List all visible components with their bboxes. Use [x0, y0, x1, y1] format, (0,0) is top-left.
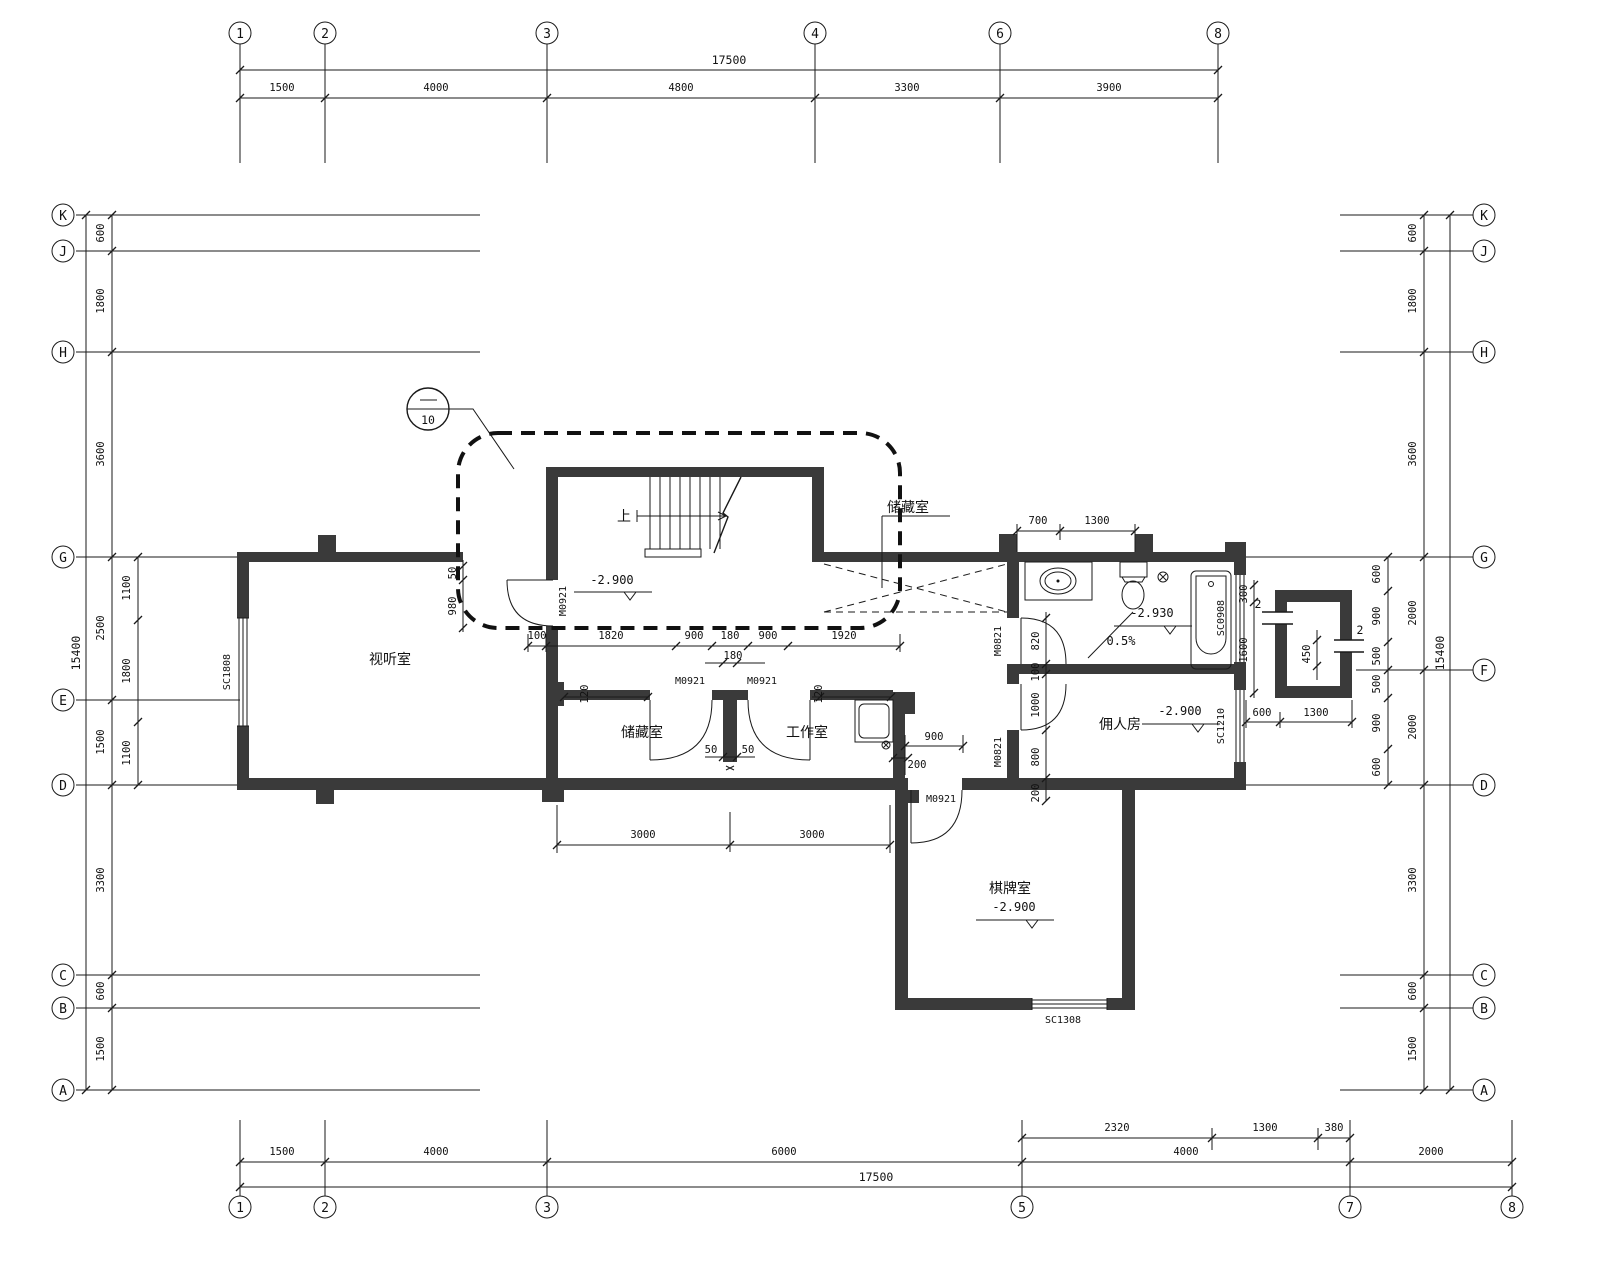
room-label-servant: 佣人房: [1099, 716, 1141, 732]
walls: [237, 467, 1246, 1010]
section-mark: 2: [1357, 623, 1364, 637]
door-code-chess: M0921: [926, 794, 956, 805]
dim: 500: [1371, 675, 1383, 694]
toilet-tank-icon: [1120, 562, 1147, 577]
dim: 50: [447, 567, 459, 580]
dim: 1500: [95, 729, 107, 754]
dim: 900: [925, 731, 944, 743]
dim: 820: [1030, 632, 1042, 651]
detail-dashed-boundary: [458, 433, 900, 628]
dim: 200: [1030, 784, 1042, 803]
window-code-bath: SC0908: [1216, 600, 1227, 636]
dim: 120: [579, 685, 591, 704]
shower-stall-icon: [855, 700, 893, 742]
level-chess: -2.900: [992, 900, 1035, 914]
dim: 300: [1238, 585, 1250, 604]
dim: 900: [759, 630, 778, 642]
dim: 3600: [95, 441, 107, 466]
room-label-storage-under-stair: 储藏室: [887, 499, 929, 515]
window-code-servant: SC1210: [1216, 708, 1227, 744]
windows: [237, 575, 1244, 1010]
level-servant: -2.900: [1158, 704, 1201, 718]
shaft-dim-lines: [1246, 580, 1352, 728]
shaft: 2 2 300 1600 450 600 1300: [1238, 580, 1364, 728]
grid-bubble: D: [59, 779, 67, 794]
detail-region: 10 储藏室: [407, 388, 1007, 628]
stair-up-label: 上: [617, 508, 631, 524]
dim: 180: [721, 630, 740, 642]
stair: 上: [617, 477, 741, 557]
stair-risers: [650, 477, 720, 549]
floor-plan-canvas: 1 2 3 4 6 8 17500 1500 4000 4800 3300 39…: [0, 0, 1600, 1280]
dim: 2000: [1407, 600, 1419, 625]
dim: 50: [705, 744, 718, 756]
grid-bubble: 7: [1346, 1201, 1354, 1216]
dim: 1100: [121, 740, 133, 765]
level-bath-symbol: [1114, 626, 1192, 634]
grid-bubble: 3: [543, 27, 551, 42]
toilet-bowl-icon: [1122, 581, 1144, 609]
stair-landing-edge: [645, 549, 701, 557]
level-servant-symbol: [1142, 724, 1220, 732]
grid-bubble: H: [59, 346, 67, 361]
dim: 100: [1030, 663, 1042, 682]
dim: 2000: [1418, 1146, 1443, 1158]
window-code-media: SC1808: [222, 654, 233, 690]
dim: 600: [1253, 707, 1272, 719]
dim: 3000: [799, 829, 824, 841]
grid-bubble: H: [1480, 346, 1488, 361]
dim: 1100: [121, 575, 133, 600]
dim: 1500: [1407, 1036, 1419, 1061]
room-label-storage: 储藏室: [621, 724, 663, 740]
dim: 600: [1371, 758, 1383, 777]
understair-storage-outline: [824, 564, 1007, 612]
bottom-grid: 1 2 3 5 7 8 2320 1300 380 1500 4000 6000…: [229, 1120, 1523, 1218]
dim: 50: [742, 744, 755, 756]
level-chess-symbol: [976, 920, 1054, 928]
grid-bubble: 2: [321, 27, 329, 42]
doors: [507, 580, 1066, 843]
left-dim-lines: [86, 215, 138, 1090]
grid-bubble: F: [1480, 664, 1488, 679]
dim: 1300: [1303, 707, 1328, 719]
grid-bubble: 3: [543, 1201, 551, 1216]
dim: 3300: [95, 867, 107, 892]
grid-bubble: J: [59, 245, 67, 260]
level-hall-symbol: [574, 592, 652, 600]
room-label-work: 工作室: [786, 724, 828, 740]
door-stair-swing: [507, 580, 553, 626]
room-label-chess: 棋牌室: [989, 880, 1031, 896]
grid-bubble: 4: [811, 27, 819, 42]
grid-bubble: B: [1480, 1002, 1488, 1017]
floor-plan-page: 1 2 3 4 6 8 17500 1500 4000 4800 3300 39…: [0, 0, 1600, 1280]
dim: 3900: [1096, 82, 1121, 94]
grid-bubble: C: [1480, 969, 1488, 984]
section-mark: 2: [1255, 597, 1262, 611]
dim: 600: [95, 224, 107, 243]
window-chess-sc1308: [1032, 998, 1107, 1010]
dim: 100: [528, 630, 547, 642]
dim: 200: [908, 759, 927, 771]
grid-bubble: 5: [1018, 1201, 1026, 1216]
window-media-sc1808: [237, 618, 249, 726]
top-dim-ticks: [236, 66, 1222, 102]
top-grid: 1 2 3 4 6 8 17500 1500 4000 4800 3300 39…: [229, 22, 1229, 163]
dim: 180: [724, 650, 743, 662]
dim: 1920: [831, 630, 856, 642]
door-servant-swing: [1021, 684, 1066, 730]
door-code-storage: M0921: [675, 676, 705, 687]
dim: 900: [685, 630, 704, 642]
top-dim-lines: [240, 70, 1218, 98]
grid-bubble: D: [1480, 779, 1488, 794]
grid-bubble: A: [59, 1084, 67, 1099]
dim: 800: [1030, 748, 1042, 767]
dim: 900: [1371, 607, 1383, 626]
dim: 4800: [668, 82, 693, 94]
left-grid: K J H G E D C B A 15400 600 1800 3600 25…: [52, 204, 480, 1101]
dim: 450: [1301, 645, 1313, 664]
dim: 6000: [771, 1146, 796, 1158]
dim: 1500: [269, 1146, 294, 1158]
door-code-work: M0921: [747, 676, 777, 687]
dim: 4000: [423, 82, 448, 94]
grid-bubble: G: [59, 551, 67, 566]
dim: 600: [1407, 224, 1419, 243]
room-label-media: 视听室: [369, 651, 411, 667]
level-bath-slope: 0.5%: [1107, 634, 1137, 648]
grid-bubble: J: [1480, 245, 1488, 260]
grid-bubble: 2: [321, 1201, 329, 1216]
dim-total: 15400: [1433, 636, 1447, 671]
left-grid-lines: [76, 215, 480, 1090]
bottom-grid-stems: [240, 1120, 1512, 1196]
bathroom-fixtures: [855, 562, 1231, 749]
dim: 600: [1407, 982, 1419, 1001]
dim: 3600: [1407, 441, 1419, 466]
door-code-stair: M0921: [558, 586, 569, 616]
dim: 1600: [1238, 637, 1250, 662]
grid-bubble: G: [1480, 551, 1488, 566]
level-hall: -2.900: [590, 573, 633, 587]
dim: 3000: [630, 829, 655, 841]
dim: 1000: [1030, 692, 1042, 717]
dim: 600: [1371, 565, 1383, 584]
dim: 2000: [1407, 714, 1419, 739]
dim: 2320: [1104, 1122, 1129, 1134]
door-bath-swing: [1021, 618, 1066, 664]
dim-total: 15400: [69, 636, 83, 671]
dim: 4000: [1173, 1146, 1198, 1158]
grid-bubble: 8: [1214, 27, 1222, 42]
dim: 1800: [95, 288, 107, 313]
grid-bubble: B: [59, 1002, 67, 1017]
dim: 2500: [95, 615, 107, 640]
dim: 980: [447, 597, 459, 616]
grid-bubble: C: [59, 969, 67, 984]
dim: 4000: [423, 1146, 448, 1158]
grid-bubble: 6: [996, 27, 1004, 42]
dim: 380: [1325, 1122, 1344, 1134]
dim: 120: [813, 685, 825, 704]
dim: 1500: [95, 1036, 107, 1061]
grid-bubble: 8: [1508, 1201, 1516, 1216]
dim: 1800: [121, 658, 133, 683]
level-bath: -2.930: [1130, 606, 1173, 620]
grid-bubble: E: [59, 694, 67, 709]
dim: 1820: [598, 630, 623, 642]
window-code-chess: SC1308: [1045, 1015, 1081, 1026]
dim: 1800: [1407, 288, 1419, 313]
grid-bubble: 1: [236, 27, 244, 42]
dim: 3300: [1407, 867, 1419, 892]
dim: 700: [1029, 515, 1048, 527]
dim: 900: [1371, 714, 1383, 733]
door-code-servant: M0821: [993, 737, 1004, 767]
grid-bubble: 1: [236, 1201, 244, 1216]
dim: 3300: [894, 82, 919, 94]
bottom-mid-dim-line: [557, 805, 890, 853]
dim-total: 17500: [712, 53, 747, 67]
detail-bubble-number: 10: [421, 413, 435, 427]
grid-bubble: A: [1480, 1084, 1488, 1099]
bath-top-dim-line: [1017, 524, 1135, 552]
dim: 1300: [1084, 515, 1109, 527]
door-code-bath: M0821: [993, 626, 1004, 656]
dim: 1300: [1252, 1122, 1277, 1134]
dim: 600: [95, 982, 107, 1001]
detail-bubble-divider: [407, 400, 449, 409]
stair-break-line: [714, 477, 741, 553]
grid-bubble: K: [1480, 209, 1488, 224]
dim: 1500: [269, 82, 294, 94]
dim: 500: [1371, 647, 1383, 666]
dim-total: 17500: [859, 1170, 894, 1184]
grid-bubble: K: [59, 209, 67, 224]
